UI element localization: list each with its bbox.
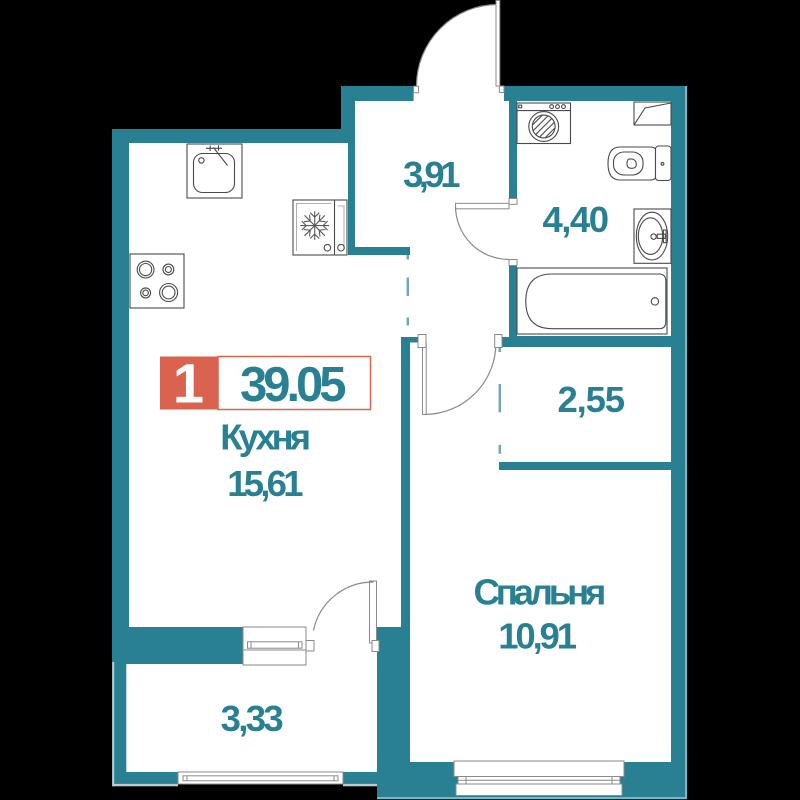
svg-text:Спальня: Спальня (474, 571, 607, 612)
svg-text:1: 1 (173, 352, 204, 415)
svg-text:3,33: 3,33 (221, 698, 284, 739)
svg-text:2,55: 2,55 (558, 379, 626, 420)
svg-text:4,40: 4,40 (543, 199, 610, 240)
svg-text:3,91: 3,91 (403, 154, 461, 195)
svg-text:15,61: 15,61 (227, 463, 303, 504)
svg-text:10,91: 10,91 (498, 616, 577, 657)
svg-text:Кухня: Кухня (220, 416, 311, 457)
svg-text:39.05: 39.05 (240, 358, 347, 412)
